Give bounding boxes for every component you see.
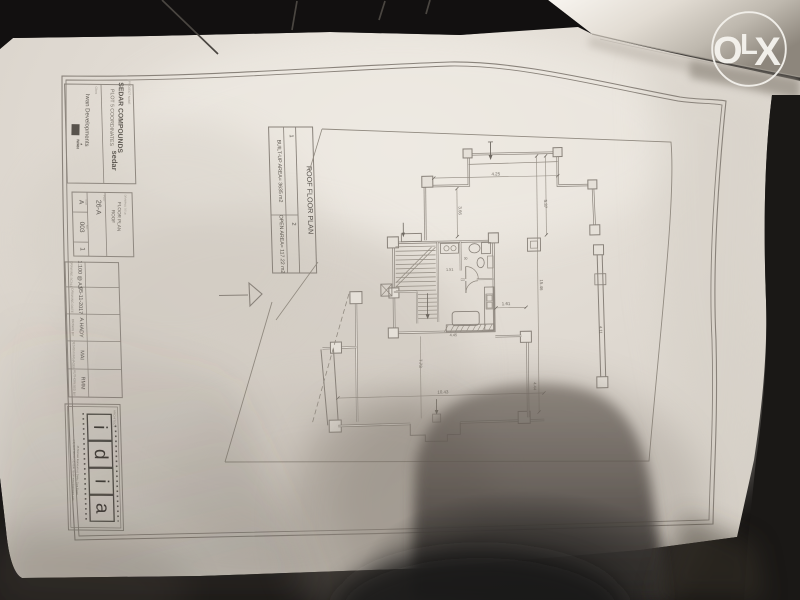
svg-text:SEDAR COMPOUNDS: SEDAR COMPOUNDS	[116, 82, 124, 153]
svg-text:DRAWING SCALE: DRAWING SCALE	[69, 261, 73, 288]
svg-text:NO.: NO.	[85, 225, 89, 230]
svg-text:7.73: 7.73	[418, 359, 423, 368]
svg-text:DRAWING TITLE: DRAWING TITLE	[123, 195, 127, 215]
svg-text:05-11-2017: 05-11-2017	[77, 287, 83, 314]
svg-text:1.61: 1.61	[502, 301, 511, 306]
svg-text:4.45: 4.45	[450, 333, 457, 337]
svg-text:▲: ▲	[80, 143, 84, 146]
svg-text:4.11: 4.11	[598, 326, 603, 335]
svg-text:1: 1	[288, 134, 294, 137]
svg-text:5.37: 5.37	[543, 200, 548, 209]
svg-text:2: 2	[290, 222, 296, 225]
svg-text:Iwan Developments: Iwan Developments	[83, 94, 90, 147]
svg-text:ROOF: ROOF	[111, 210, 116, 224]
svg-text:PLOT 5 COORDINATES: PLOT 5 COORDINATES	[108, 89, 115, 146]
svg-text:PLOT: PLOT	[102, 195, 106, 202]
svg-text:sedar: sedar	[110, 150, 119, 170]
svg-text:4.25: 4.25	[491, 171, 500, 176]
svg-text:003: 003	[78, 222, 85, 233]
svg-text:PROJECT NAME: PROJECT NAME	[127, 81, 131, 105]
svg-text:SIZE: SIZE	[84, 199, 88, 205]
svg-text:30: 30	[464, 256, 468, 260]
svg-text:1: 1	[79, 247, 86, 251]
svg-text:15.46: 15.46	[539, 279, 544, 291]
svg-text:FLOOR PLAN: FLOOR PLAN	[116, 202, 121, 231]
svg-text:26-A: 26-A	[94, 200, 101, 215]
svg-text:Client: Client	[94, 86, 98, 94]
svg-text:IWAN: IWAN	[76, 139, 80, 149]
svg-text:1:100 @ A3: 1:100 @ A3	[76, 260, 82, 288]
svg-text:1.51: 1.51	[446, 268, 453, 272]
svg-text:DRAWING DATE: DRAWING DATE	[70, 288, 74, 312]
svg-text:A: A	[77, 200, 84, 205]
svg-text:ROOF FLOOR PLAN: ROOF FLOOR PLAN	[305, 166, 316, 234]
svg-text:3.66: 3.66	[458, 206, 463, 215]
